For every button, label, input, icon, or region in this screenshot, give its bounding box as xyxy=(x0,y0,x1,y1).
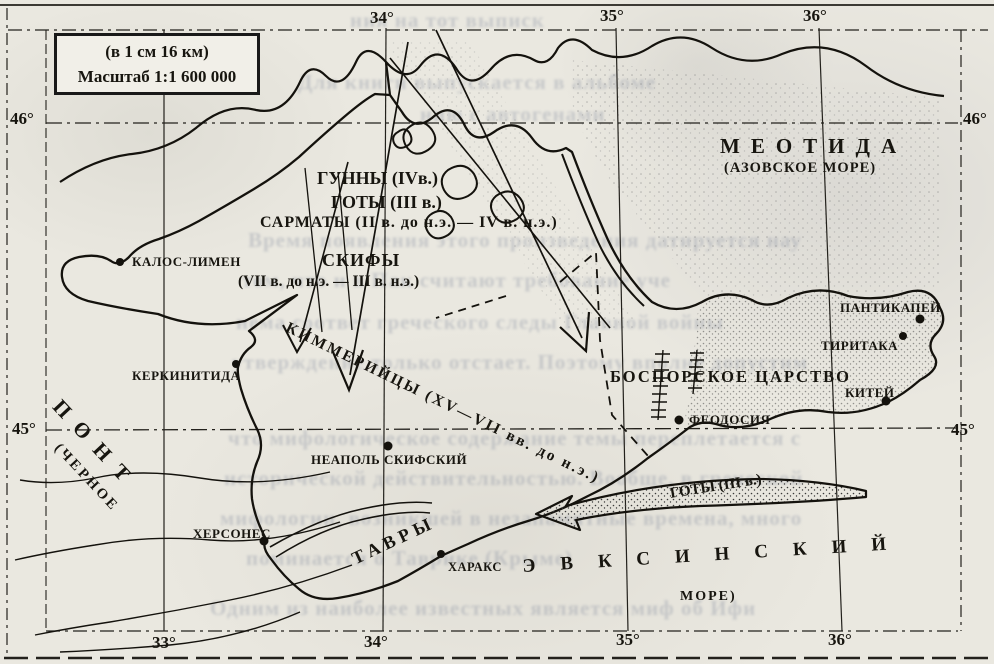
city-dot-kerkinitida xyxy=(232,360,240,368)
longitude-label-bottom-34: 34° xyxy=(364,633,388,650)
city-label-neapol-skifskiy: НЕАПОЛЬ СКИФСКИЙ xyxy=(311,453,467,466)
dashed-boundary-segment xyxy=(436,296,506,318)
city-dot-neapol-skifskiy xyxy=(384,442,393,451)
people-label-huns: ГУННЫ (IVв.) xyxy=(317,169,438,187)
latitude-label-right-46: 46° xyxy=(963,110,987,127)
stipple-azov-sea xyxy=(572,60,940,298)
city-label-pantikapey: ПАНТИКАПЕЙ xyxy=(840,301,941,314)
longitude-label-bottom-35: 35° xyxy=(616,631,640,648)
people-label-scythians-dates: (VII в. до н.э. — III в. н.э.) xyxy=(238,274,419,290)
scale-box: (в 1 см 16 км) Масштаб 1:1 600 000 xyxy=(54,33,260,95)
city-label-kerkinitida: КЕРКИНИТИДА xyxy=(132,369,240,382)
longitude-label-bottom-33: 33° xyxy=(152,634,176,651)
longitude-label-bottom-36: 36° xyxy=(828,631,852,648)
historical-map-of-crimea: ния на тот выписк Для книги выпускается … xyxy=(0,0,994,664)
city-label-kharaks: ХАРАКС xyxy=(448,561,502,574)
sea-label-azov-sub: (АЗОВСКОЕ МОРЕ) xyxy=(724,161,876,176)
city-label-tiritaka: ТИРИТАКА xyxy=(821,339,898,352)
city-label-feodosiya: ФЕОДОСИЯ xyxy=(689,413,770,426)
people-label-sarmatians: САРМАТЫ (II в. до н.э. — IV в. н.э.) xyxy=(260,215,558,231)
city-label-kitey: КИТЕЙ xyxy=(845,386,895,399)
city-dot-tiritaka xyxy=(899,332,907,340)
rivers xyxy=(15,472,352,652)
scale-ratio-line2: Масштаб 1:1 600 000 xyxy=(78,64,236,89)
latitude-label-right-45: 45° xyxy=(951,421,975,438)
city-dot-pantikapey xyxy=(916,315,925,324)
city-dot-kalos-limen xyxy=(116,258,124,266)
city-dot-kharaks xyxy=(437,550,445,558)
latitude-label-left-46: 46° xyxy=(10,110,34,127)
longitude-label-top-34: 34° xyxy=(370,9,394,26)
region-label-bosporan-kingdom: БОСПОРСКОЕ ЦАРСТВО xyxy=(610,369,851,386)
sea-label-meotida: МЕОТИДА xyxy=(720,136,907,157)
sea-label-more-sub: МОРЕ) xyxy=(680,590,737,604)
people-label-goths: ГОТЫ (III в.) xyxy=(331,193,442,211)
longitude-label-top-35: 35° xyxy=(600,7,624,24)
city-dot-feodosiya xyxy=(675,416,684,425)
city-label-kalos-limen: КАЛОС-ЛИМЕН xyxy=(132,255,241,268)
longitude-label-top-36: 36° xyxy=(803,7,827,24)
city-label-khersones: ХЕРСОНЕС xyxy=(193,527,271,540)
scale-ratio-line1: (в 1 см 16 км) xyxy=(105,39,209,64)
people-label-scythians: СКИФЫ xyxy=(322,251,400,269)
latitude-label-left-45: 45° xyxy=(12,420,36,437)
